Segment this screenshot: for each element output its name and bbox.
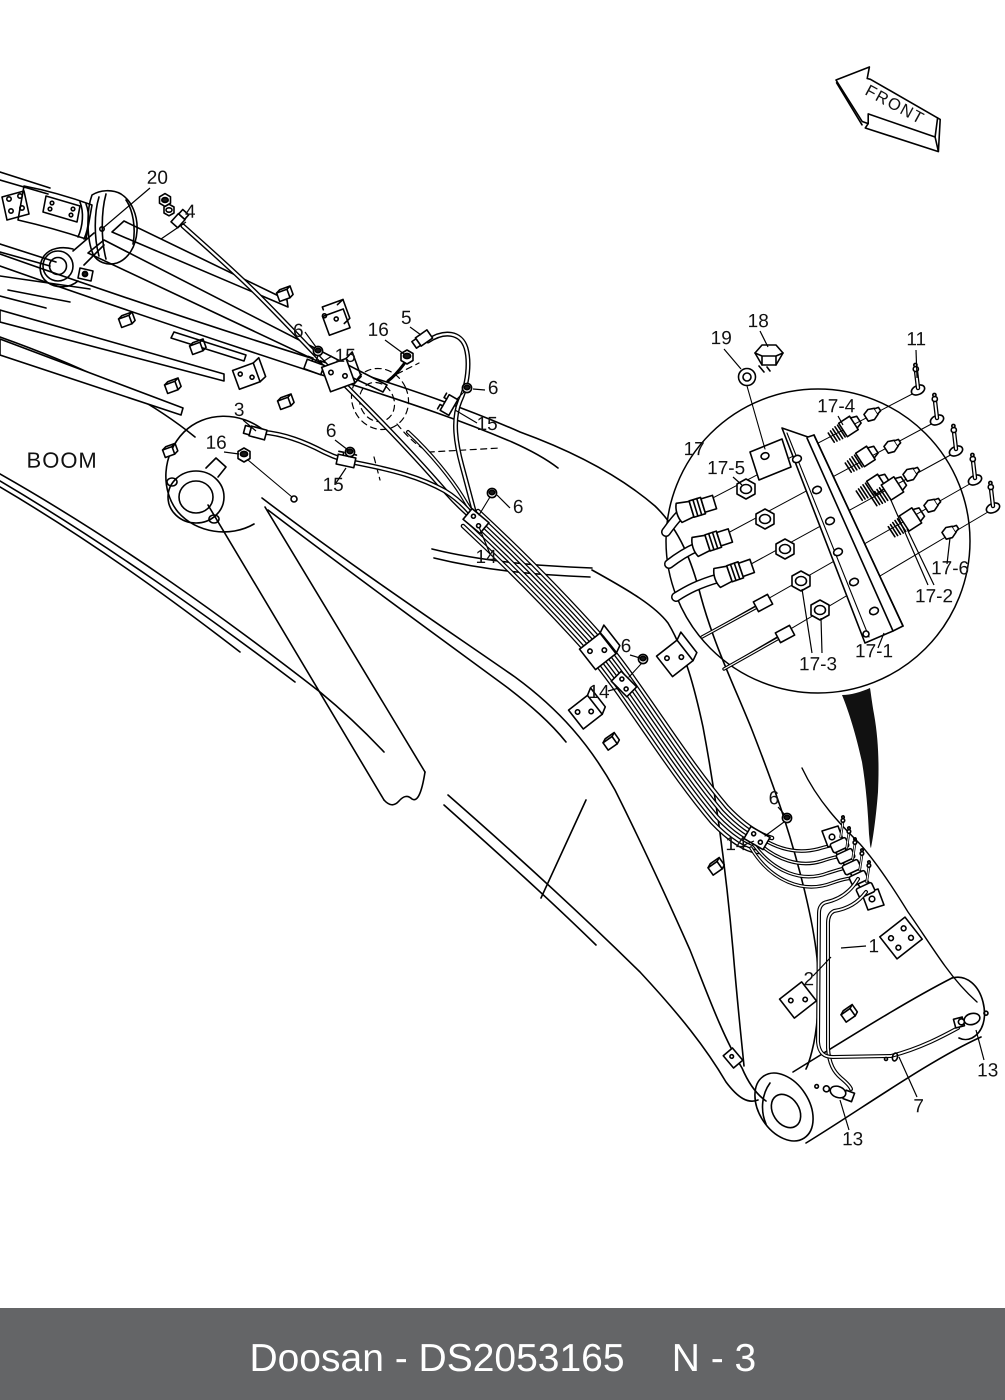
svg-text:20: 20 [147,168,168,189]
svg-text:18: 18 [748,311,769,332]
svg-text:17-2: 17-2 [915,586,953,607]
svg-text:15: 15 [323,475,344,496]
svg-text:14: 14 [476,547,498,568]
svg-text:6: 6 [513,497,524,518]
svg-text:4: 4 [185,202,196,223]
svg-text:14: 14 [588,682,610,703]
svg-text:15: 15 [477,414,498,435]
svg-text:3: 3 [234,400,245,421]
svg-text:17-1: 17-1 [855,641,893,662]
svg-text:15: 15 [335,346,356,367]
svg-text:6: 6 [488,378,499,399]
svg-text:11: 11 [906,329,926,350]
svg-text:1: 1 [869,936,880,957]
svg-text:Doosan - DS2053165: Doosan - DS2053165 [249,1337,624,1380]
svg-text:13: 13 [977,1060,998,1081]
svg-text:17-4: 17-4 [817,396,855,417]
svg-text:17-3: 17-3 [799,654,837,675]
svg-text:17-6: 17-6 [931,558,969,579]
svg-text:6: 6 [293,321,304,342]
svg-text:17: 17 [684,439,705,460]
svg-text:19: 19 [711,328,732,349]
svg-text:13: 13 [842,1129,863,1150]
svg-text:6: 6 [326,421,337,442]
svg-text:17-5: 17-5 [707,458,745,479]
svg-text:7: 7 [913,1096,924,1117]
svg-text:BOOM: BOOM [27,448,98,473]
svg-text:14: 14 [725,834,747,855]
svg-text:2: 2 [804,969,815,990]
svg-text:6: 6 [769,788,780,809]
svg-text:6: 6 [621,636,632,657]
svg-text:N - 3: N - 3 [672,1337,757,1380]
svg-text:5: 5 [401,308,412,329]
svg-text:16: 16 [368,320,389,341]
svg-text:16: 16 [206,433,227,454]
